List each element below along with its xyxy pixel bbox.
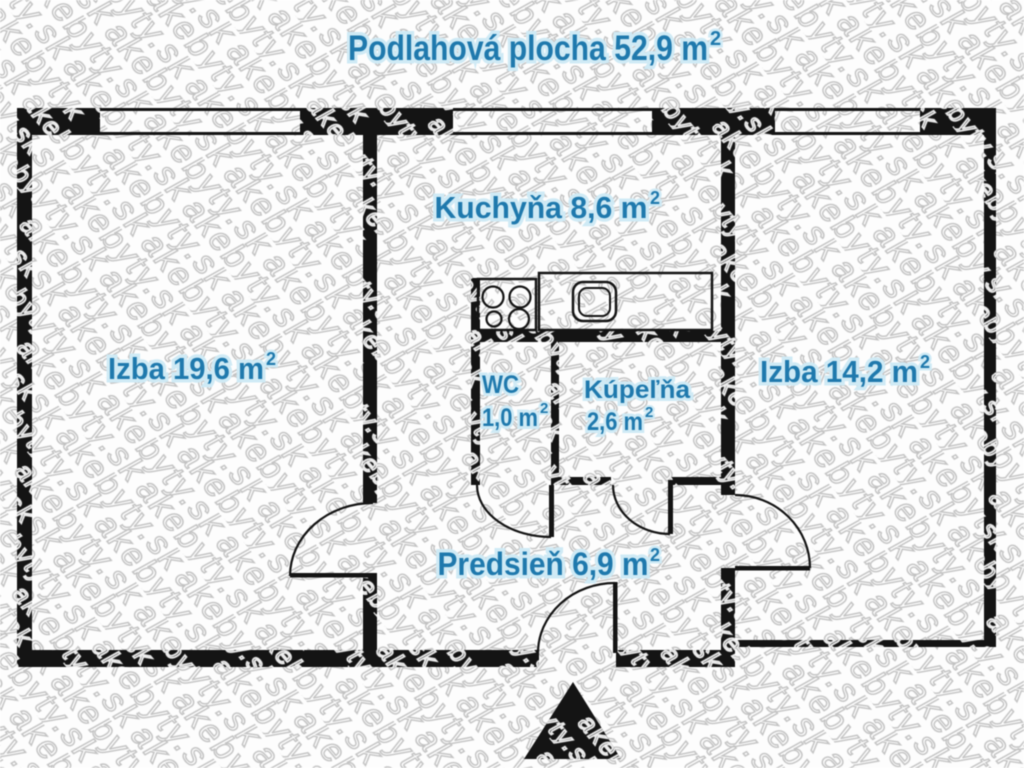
svg-text:Podlahová plocha 52,9 m: Podlahová plocha 52,9 m [348,29,708,68]
svg-text:1,0 m: 1,0 m [482,404,538,432]
svg-text:2: 2 [710,28,721,50]
svg-text:2: 2 [650,188,660,208]
svg-text:2: 2 [920,352,930,372]
svg-text:2: 2 [266,349,276,369]
svg-text:Izba 14,2 m: Izba 14,2 m [760,354,918,389]
svg-text:Kuchyňa 8,6 m: Kuchyňa 8,6 m [435,190,648,225]
svg-text:2: 2 [650,545,660,565]
svg-text:WC: WC [482,371,519,399]
svg-text:Izba 19,6 m: Izba 19,6 m [108,351,264,386]
svg-text:2,6 m: 2,6 m [587,408,643,436]
svg-text:2: 2 [645,404,653,421]
svg-text:Predsieň 6,9 m: Predsieň 6,9 m [438,546,649,582]
svg-text:2: 2 [540,400,548,417]
svg-text:Kúpeľňa: Kúpeľňa [584,376,691,404]
